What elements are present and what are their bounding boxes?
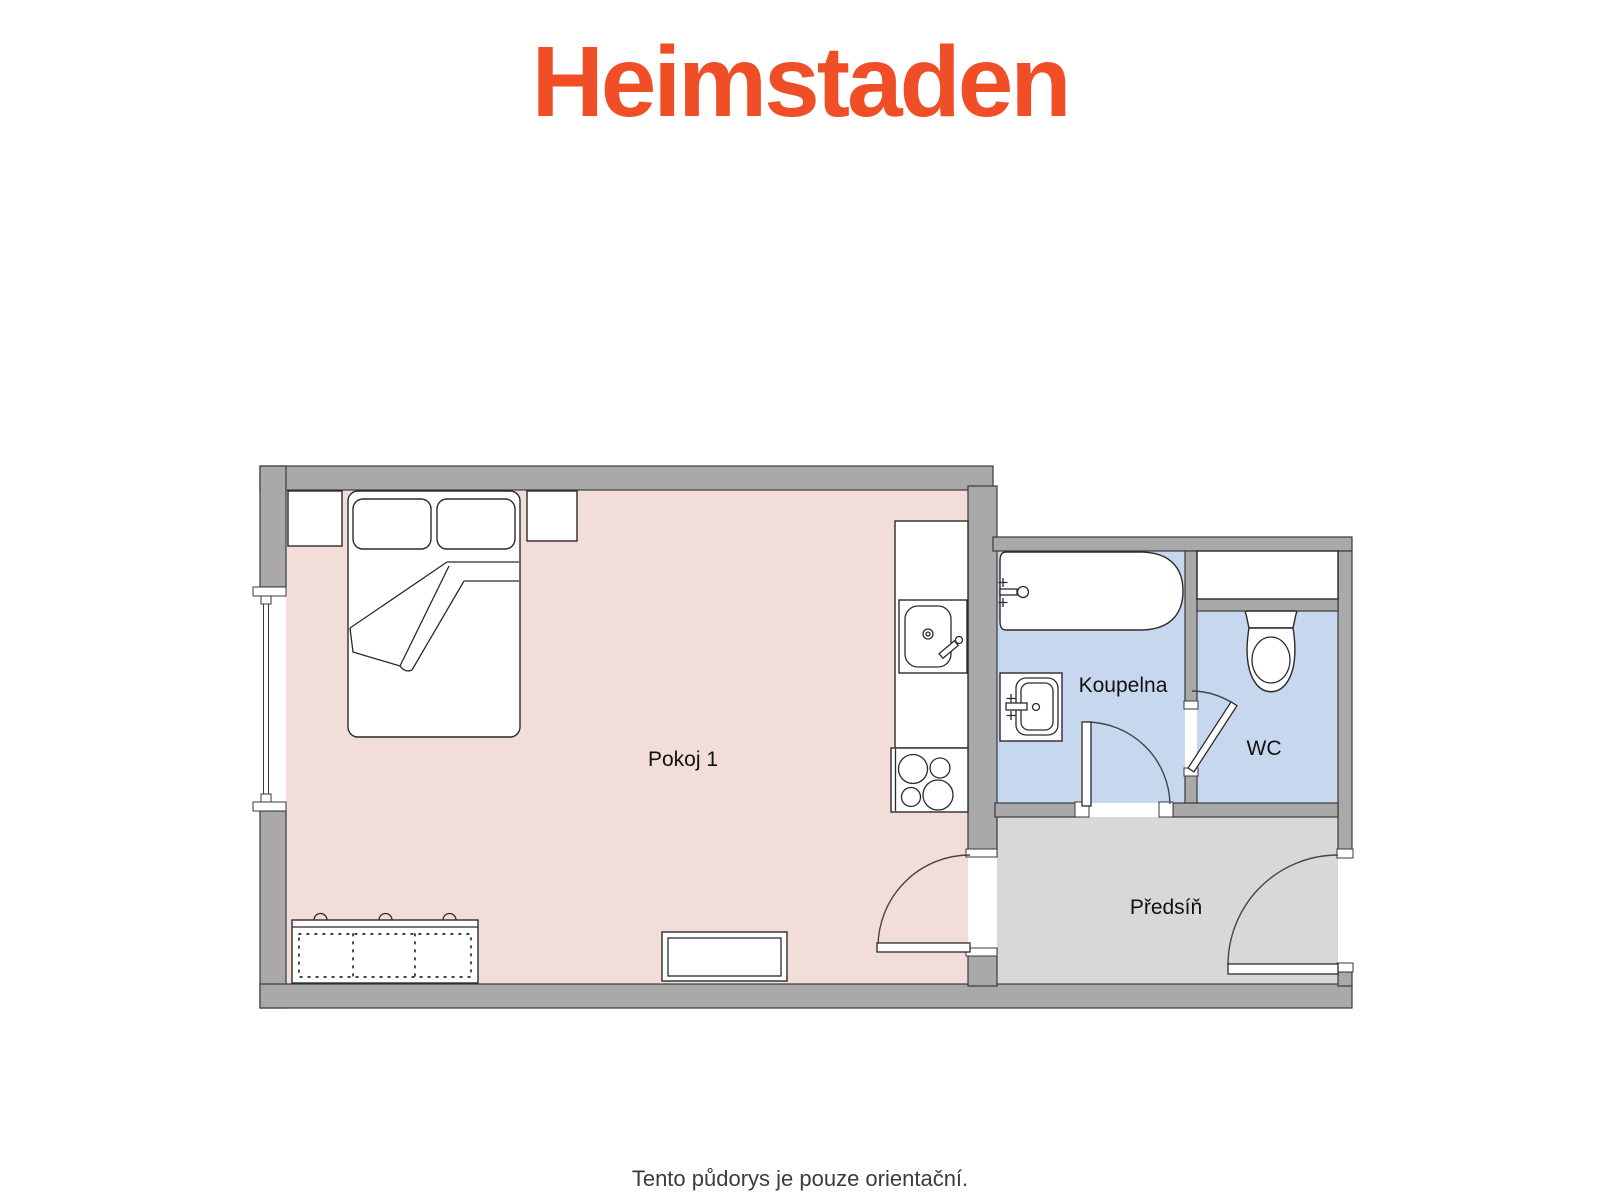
window-glass [264,604,269,794]
disclaimer-text: Tento půdorys je pouze orientační. [0,1166,1600,1192]
door-leaf [877,943,970,952]
bench [662,932,787,981]
wardrobe [292,914,478,983]
room-label-predsin: Předsíň [1130,896,1202,919]
door-leaf [1082,722,1091,806]
nightstand-left [288,491,342,546]
toilet [1245,611,1296,692]
stove [891,748,968,812]
washbasin-faucet [1006,703,1027,710]
room-label-wc: WC [1247,737,1282,760]
floorplan-page: Heimstaden [0,0,1600,1200]
double-bed [348,491,520,737]
kitchen-sink [899,600,967,673]
room-label-pokoj-1: Pokoj 1 [648,748,718,771]
window [253,587,286,811]
nightstand-right [527,491,577,541]
shaft-niche [1197,551,1338,599]
pillow-left [353,499,431,549]
room-label-koupelna: Koupelna [1079,674,1168,697]
toilet-tank [1245,611,1296,628]
washbasin [1000,673,1062,741]
door-leaf [1228,964,1338,974]
floor-plan: Pokoj 1 Koupelna WC Předsíň [0,0,1600,1200]
pillow-right [437,499,515,549]
bathtub [999,552,1184,630]
